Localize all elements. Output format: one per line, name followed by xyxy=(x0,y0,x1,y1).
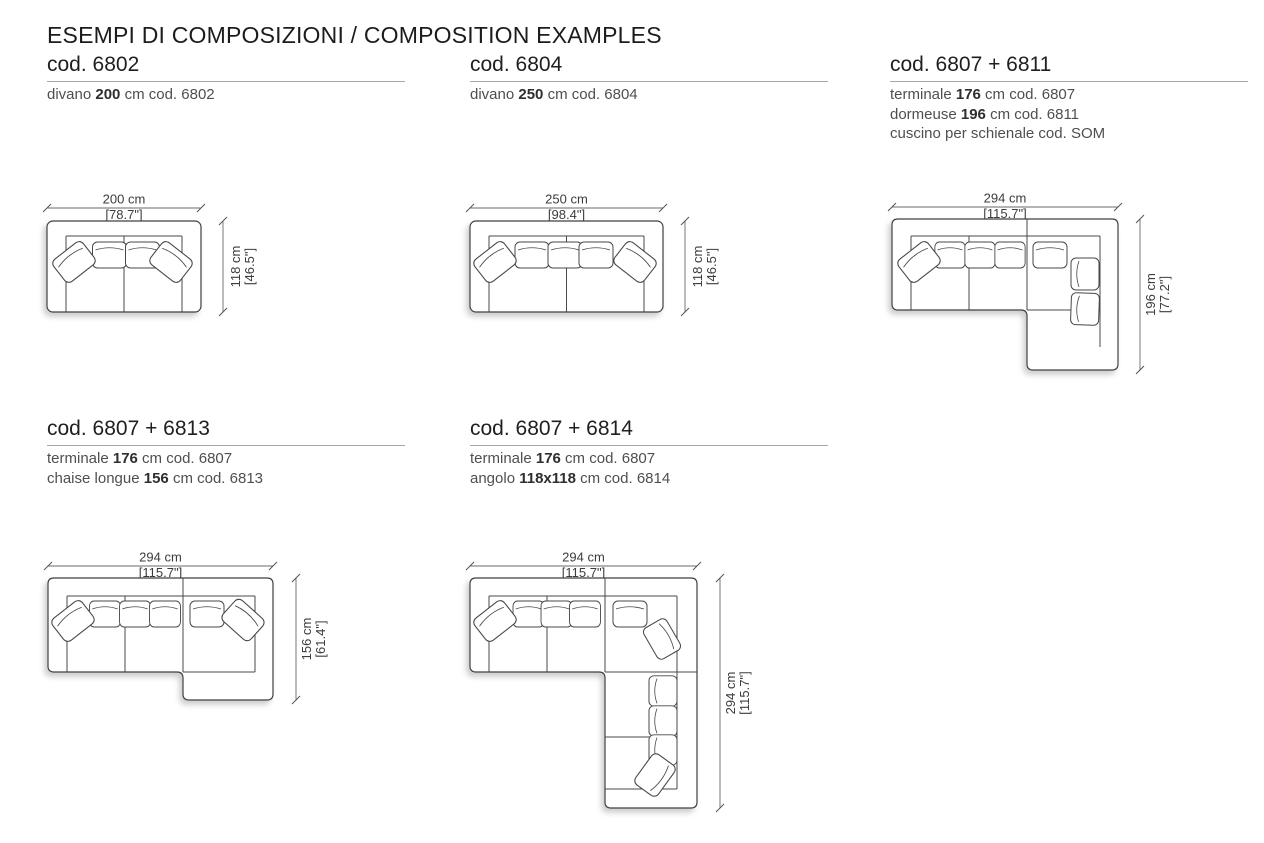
back-pillow xyxy=(570,601,601,627)
back-pillow xyxy=(150,601,181,627)
back-pillow xyxy=(995,242,1025,268)
description-line: angolo 118x118 cm cod. 6814 xyxy=(470,469,828,489)
back-pillow xyxy=(90,601,121,627)
back-pillow xyxy=(93,242,127,268)
composition-code: cod. 6802 xyxy=(47,53,405,82)
side-pillow xyxy=(1070,293,1099,326)
back-pillow xyxy=(579,242,613,268)
composition-header-6802: cod. 6802 divano 200 cm cod. 6802 xyxy=(47,53,405,105)
sofa-diagram-6807-6814: 294 cm [115.7"] 294 cm [115.7"] xyxy=(463,553,763,843)
side-pillow xyxy=(649,676,677,706)
composition-description: terminale 176 cm cod. 6807 angolo 118x11… xyxy=(470,449,828,488)
composition-description: divano 200 cm cod. 6802 xyxy=(47,85,405,105)
back-pillow xyxy=(513,601,544,627)
description-line: chaise longue 156 cm cod. 6813 xyxy=(47,469,405,489)
side-pillow xyxy=(1071,258,1099,290)
width-cm-label: 200 cm xyxy=(103,192,146,207)
width-cm-label: 294 cm xyxy=(984,191,1027,206)
composition-description: divano 250 cm cod. 6804 xyxy=(470,85,828,105)
composition-code: cod. 6807 + 6811 xyxy=(890,53,1248,82)
composition-header-6807-6811: cod. 6807 + 6811 terminale 176 cm cod. 6… xyxy=(890,53,1248,144)
back-pillow xyxy=(965,242,995,268)
back-pillow xyxy=(515,242,549,268)
back-pillow xyxy=(190,601,224,627)
page-title: ESEMPI DI COMPOSIZIONI / COMPOSITION EXA… xyxy=(47,22,662,49)
composition-description: terminale 176 cm cod. 6807 chaise longue… xyxy=(47,449,405,488)
depth-cm-label: 156 cm xyxy=(299,618,314,661)
composition-description: terminale 176 cm cod. 6807 dormeuse 196 … xyxy=(890,85,1248,144)
side-pillow xyxy=(649,706,677,736)
sofa-diagram-6802: 200 cm [78.7"] 118 cm [46.5"] xyxy=(40,188,270,336)
description-line: cuscino per schienale cod. SOM xyxy=(890,124,1248,144)
back-pillow xyxy=(541,601,572,627)
depth-inch-label: [115.7"] xyxy=(737,671,752,714)
description-line: divano 200 cm cod. 6802 xyxy=(47,85,405,105)
depth-inch-label: [46.5"] xyxy=(704,248,719,285)
description-line: terminale 176 cm cod. 6807 xyxy=(47,449,405,469)
description-line: dormeuse 196 cm cod. 6811 xyxy=(890,105,1248,125)
width-cm-label: 294 cm xyxy=(562,550,605,565)
composition-code: cod. 6807 + 6813 xyxy=(47,417,405,446)
catalog-page: ESEMPI DI COMPOSIZIONI / COMPOSITION EXA… xyxy=(0,0,1264,843)
back-pillow xyxy=(613,601,647,627)
composition-code: cod. 6804 xyxy=(470,53,828,82)
back-pillow xyxy=(1033,242,1067,268)
depth-cm-label: 118 cm xyxy=(690,246,705,288)
depth-inch-label: [77.2"] xyxy=(1157,276,1172,313)
depth-cm-label: 118 cm xyxy=(228,246,243,288)
composition-header-6804: cod. 6804 divano 250 cm cod. 6804 xyxy=(470,53,828,105)
sofa-diagram-6807-6813: 294 cm [115.7"] 156 cm [61.4"] xyxy=(41,553,341,723)
depth-cm-label: 294 cm xyxy=(723,672,738,715)
width-inch-label: [78.7"] xyxy=(105,207,142,222)
width-inch-label: [98.4"] xyxy=(548,207,585,222)
sofa-diagram-6804: 250 cm [98.4"] 118 cm [46.5"] xyxy=(463,188,728,336)
composition-header-6807-6813: cod. 6807 + 6813 terminale 176 cm cod. 6… xyxy=(47,417,405,488)
width-cm-label: 294 cm xyxy=(139,550,182,565)
depth-inch-label: [61.4"] xyxy=(313,620,328,657)
depth-inch-label: [46.5"] xyxy=(242,248,257,285)
composition-header-6807-6814: cod. 6807 + 6814 terminale 176 cm cod. 6… xyxy=(470,417,828,488)
description-line: terminale 176 cm cod. 6807 xyxy=(890,85,1248,105)
depth-cm-label: 196 cm xyxy=(1143,273,1158,316)
back-pillow xyxy=(548,242,582,268)
width-cm-label: 250 cm xyxy=(545,192,588,207)
composition-code: cod. 6807 + 6814 xyxy=(470,417,828,446)
back-pillow xyxy=(120,601,151,627)
description-line: terminale 176 cm cod. 6807 xyxy=(470,449,828,469)
description-line: divano 250 cm cod. 6804 xyxy=(470,85,828,105)
sofa-diagram-6807-6811: 294 cm [115.7"] 196 cm [77.2"] xyxy=(885,187,1185,392)
